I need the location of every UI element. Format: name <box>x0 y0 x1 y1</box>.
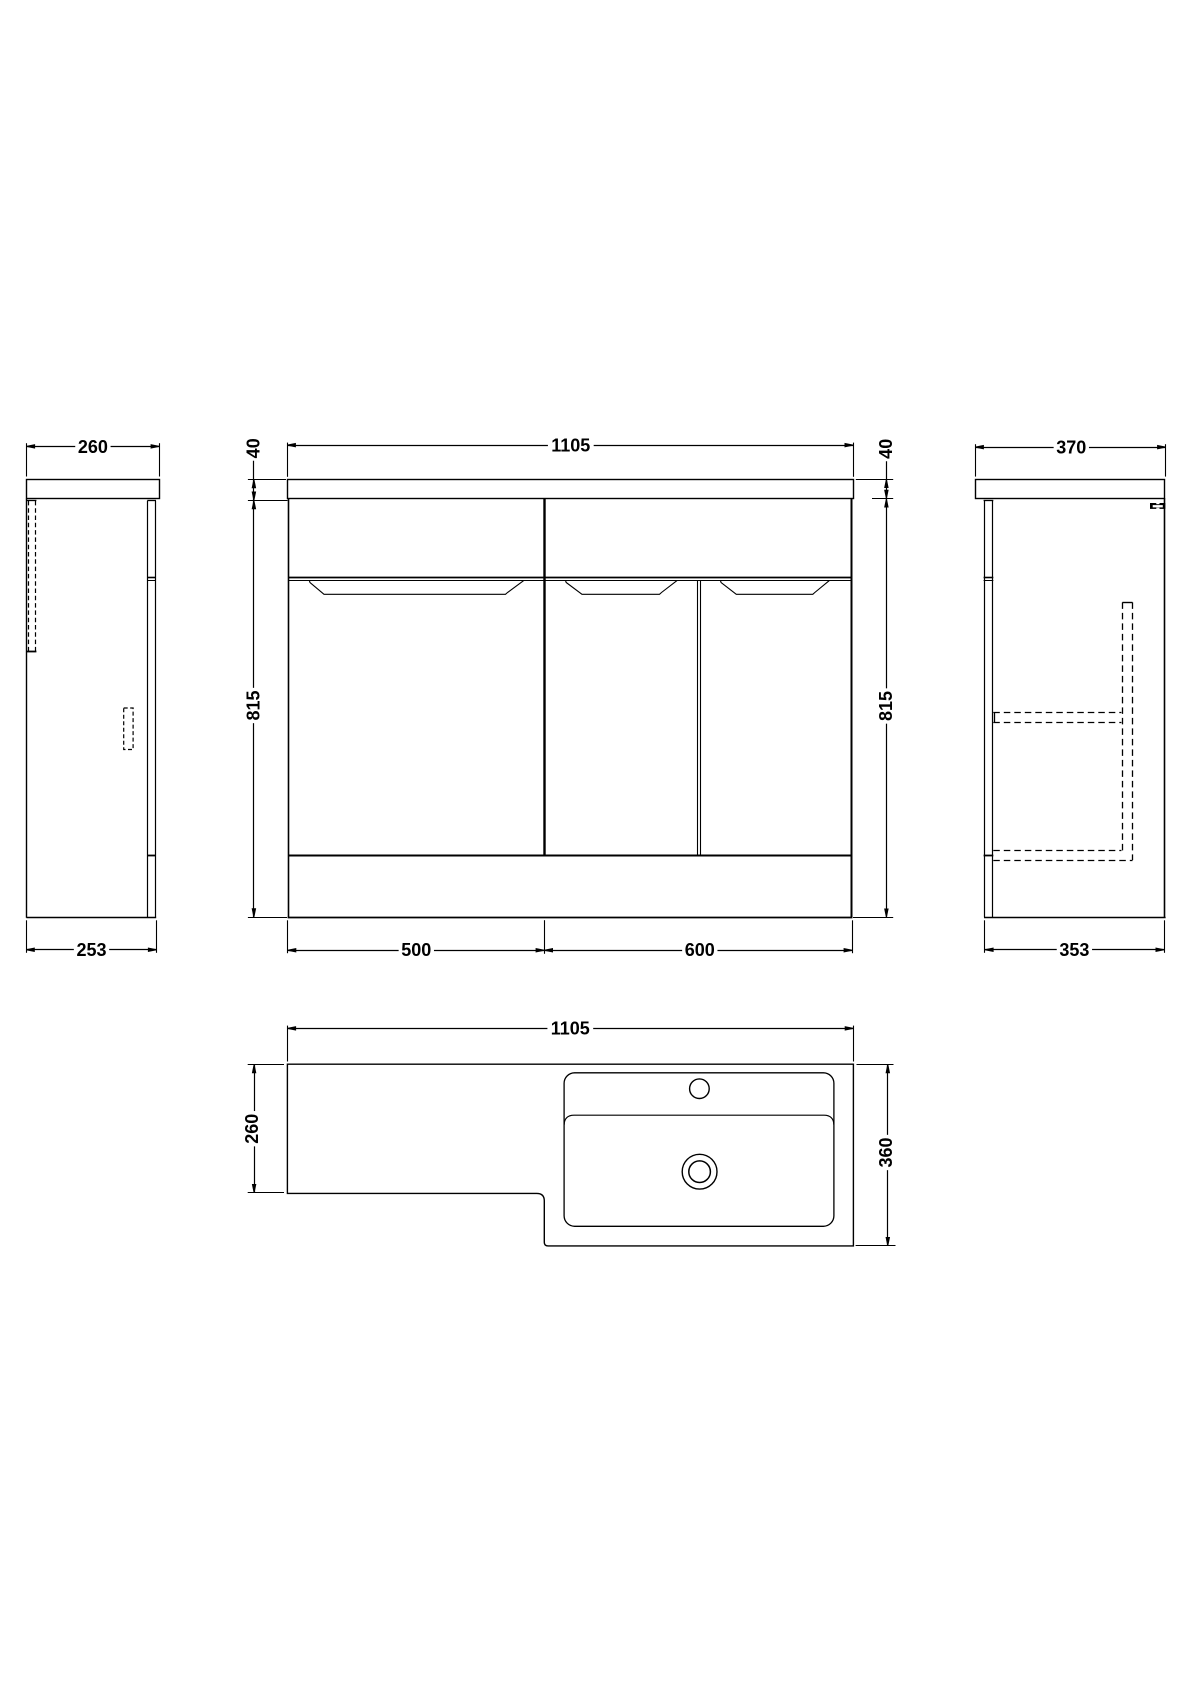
svg-text:1105: 1105 <box>551 1019 590 1039</box>
svg-text:815: 815 <box>244 690 264 720</box>
svg-text:360: 360 <box>876 1137 896 1167</box>
svg-text:260: 260 <box>242 1114 262 1144</box>
svg-text:600: 600 <box>685 940 715 960</box>
svg-text:40: 40 <box>243 438 263 458</box>
svg-text:815: 815 <box>876 691 896 721</box>
svg-text:500: 500 <box>401 940 431 960</box>
svg-text:253: 253 <box>76 940 106 960</box>
svg-text:353: 353 <box>1059 940 1089 960</box>
svg-text:1105: 1105 <box>551 435 590 455</box>
svg-text:370: 370 <box>1056 437 1086 457</box>
svg-text:40: 40 <box>876 439 896 459</box>
svg-text:260: 260 <box>78 437 108 457</box>
